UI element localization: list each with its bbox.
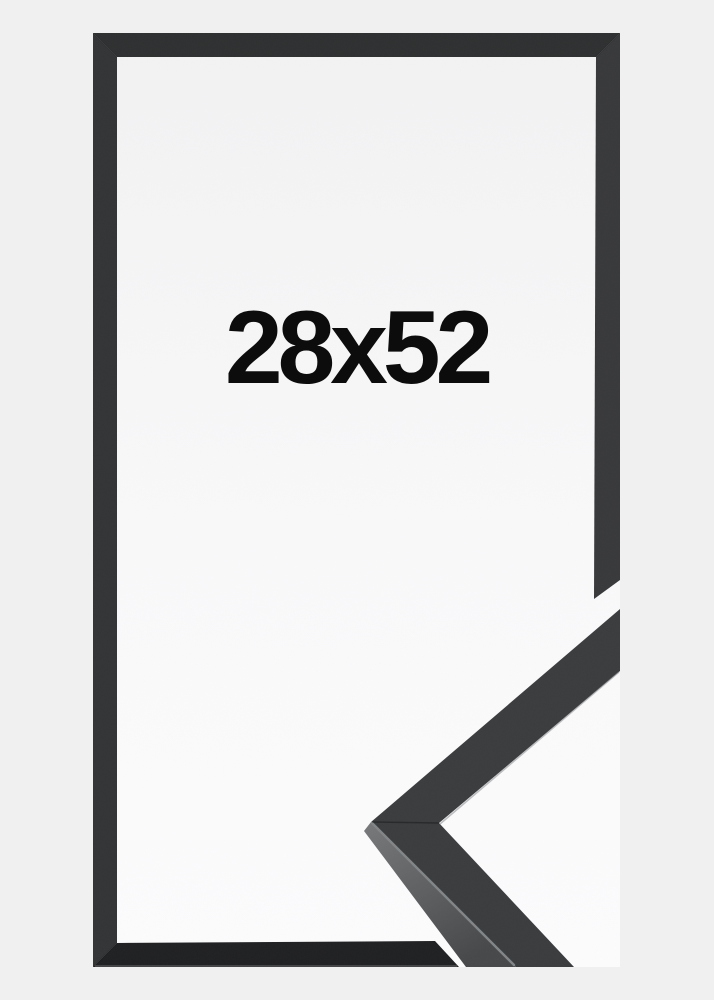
photo-grain-overlay bbox=[93, 33, 620, 967]
size-label: 28x52 bbox=[93, 293, 620, 403]
product-photo: 28x52 bbox=[93, 33, 620, 967]
frame-illustration bbox=[93, 33, 620, 967]
